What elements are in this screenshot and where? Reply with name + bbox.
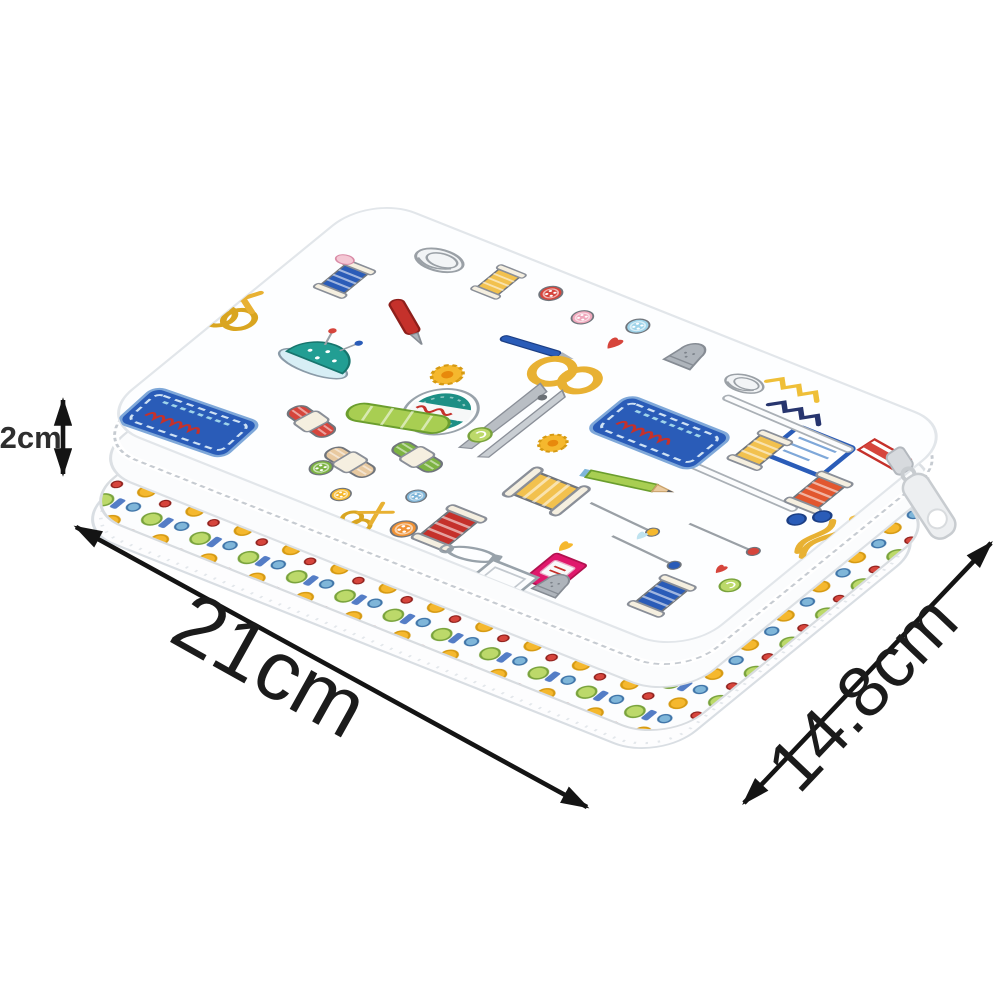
height-label: .2cm xyxy=(0,420,62,455)
product-image: .2cm 21cm 14.8cm xyxy=(0,0,1000,1000)
product-illustration: .2cm 21cm 14.8cm xyxy=(0,0,1000,1000)
